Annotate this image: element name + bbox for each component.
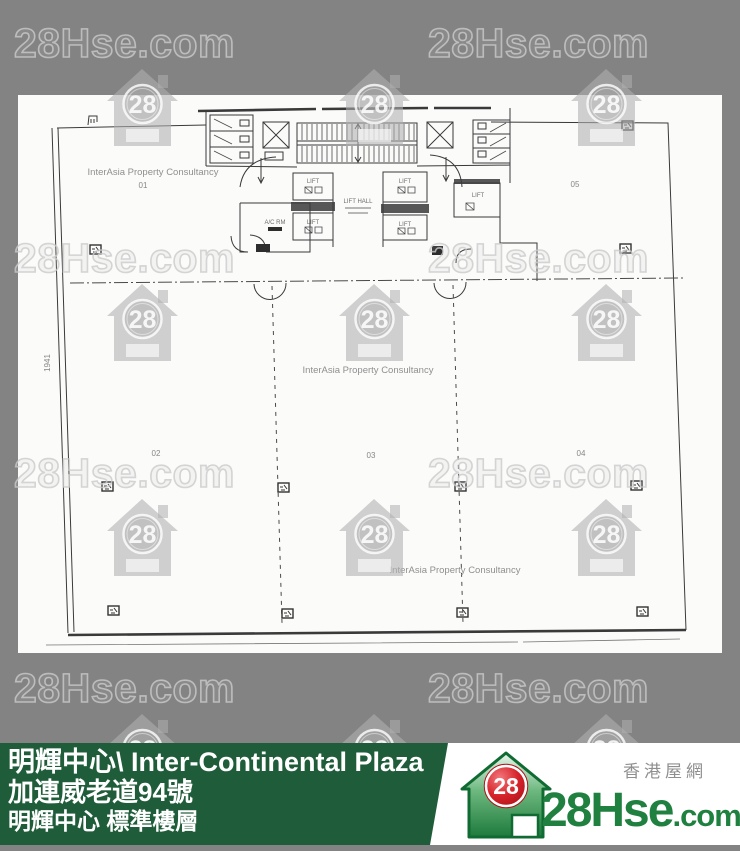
title-banner: 明輝中心\ Inter-Continental Plaza 加連威老道94號 明…	[0, 743, 460, 845]
floorplan-sheet: LIFT LIFT LIFT LIFT LIFT HALL	[18, 95, 722, 653]
ac-room-label: A/C RM	[265, 220, 286, 226]
lift-left-2: LIFT	[293, 213, 333, 240]
unit-04-label: 04	[577, 449, 586, 458]
partition-line	[70, 278, 683, 283]
unit-01-label: 01	[139, 181, 148, 190]
watermark-text: 28Hse.com	[428, 665, 649, 711]
site-logo: 28 香港屋網 28Hse.com	[455, 743, 740, 845]
logo-badge-text: 28	[493, 773, 519, 799]
logo-tld: .com	[672, 798, 740, 833]
page: { "watermark": { "text": "28Hse.com", "b…	[0, 0, 740, 851]
logo-wordmark: 28Hse.com	[541, 783, 740, 838]
watermark-text: 28Hse.com	[14, 665, 235, 711]
lift-right-single: LIFT	[454, 179, 500, 217]
logo-tagline: 香港屋網	[623, 757, 707, 782]
lift-label: LIFT	[399, 222, 412, 228]
lift-label: LIFT	[307, 179, 320, 185]
lift-label: LIFT	[399, 179, 412, 185]
watermark-text: 28Hse.com	[14, 20, 235, 66]
consultancy-label-unit01: InterAsia Property Consultancy	[88, 167, 219, 178]
unit-05-label: 05	[571, 180, 580, 189]
lift-left-1: LIFT	[293, 173, 333, 200]
logo-brand: 28Hse	[541, 784, 672, 837]
floorplan-drawing: LIFT LIFT LIFT LIFT LIFT HALL	[18, 95, 722, 653]
building-title: 明輝中心\ Inter-Continental Plaza	[0, 743, 460, 777]
dimension-label: 1941	[43, 354, 52, 372]
building-address: 加連威老道94號	[0, 777, 460, 807]
lift-right-1: LIFT	[383, 172, 427, 202]
bottom-strip	[0, 845, 740, 851]
plan-outline	[57, 125, 206, 128]
building-floor: 明輝中心 標準樓層	[0, 807, 460, 835]
watermark-text: 28Hse.com	[428, 20, 649, 66]
lift-label: LIFT	[307, 220, 320, 226]
unit-02-label: 02	[152, 449, 161, 458]
lift-label: LIFT	[472, 193, 485, 199]
consultancy-label-center: InterAsia Property Consultancy	[303, 365, 434, 376]
lift-right-2: LIFT	[383, 215, 427, 240]
lift-hall-label: LIFT HALL	[344, 199, 374, 205]
footer: 明輝中心\ Inter-Continental Plaza 加連威老道94號 明…	[0, 743, 740, 845]
unit-03-label: 03	[367, 451, 376, 460]
consultancy-label-bottom: InterAsia Property Consultancy	[390, 565, 521, 576]
logo-house-icon: 28	[460, 751, 552, 839]
